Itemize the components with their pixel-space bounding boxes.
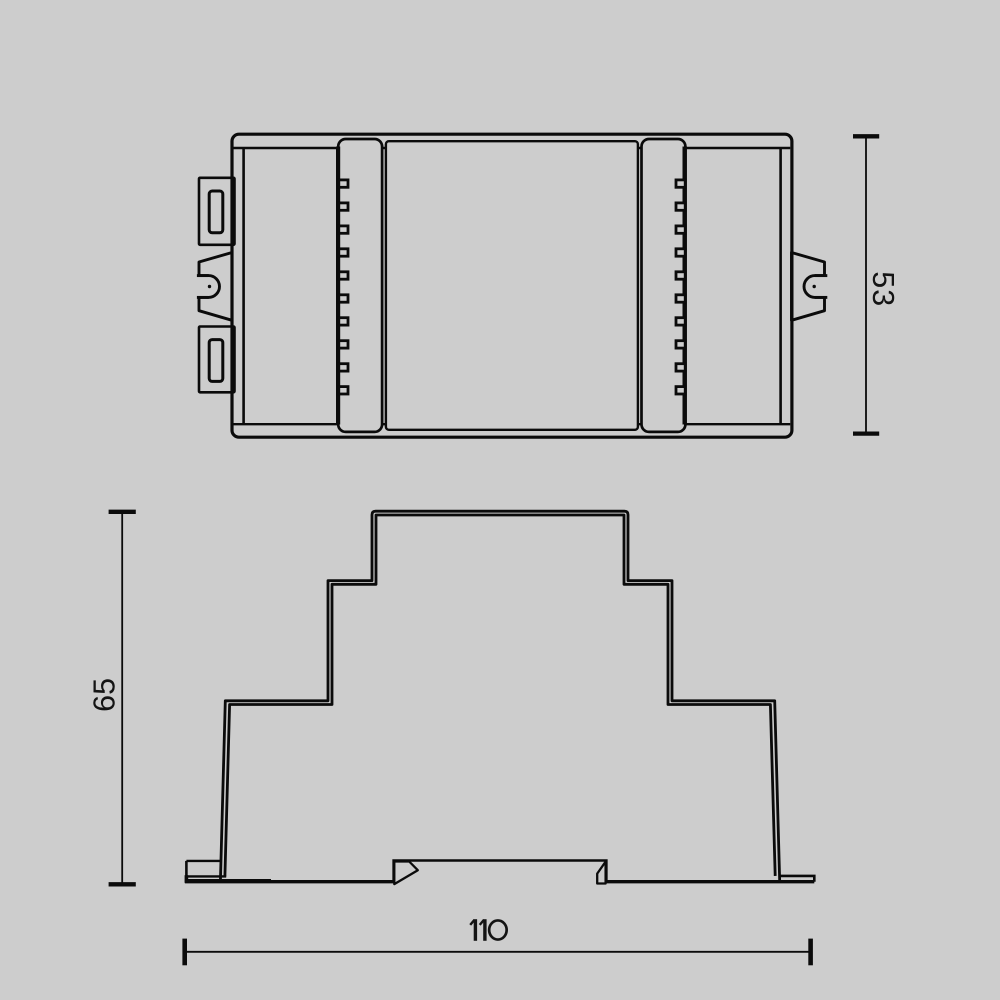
svg-text:53: 53 bbox=[866, 271, 900, 307]
svg-text:65: 65 bbox=[87, 678, 121, 712]
